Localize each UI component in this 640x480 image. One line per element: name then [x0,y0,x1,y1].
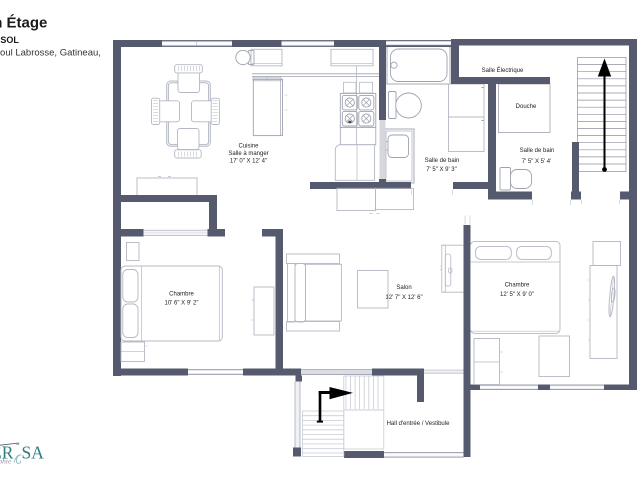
svg-text:n Étage: n Étage [0,15,47,32]
svg-text:SA: SA [22,443,45,463]
svg-text:Cuisine: Cuisine [238,144,259,150]
svg-text:10' 6" X 9' 2": 10' 6" X 9' 2" [165,300,199,306]
svg-text:17' 0" X 12' 4": 17' 0" X 12' 4" [230,159,267,165]
svg-text:Salle à manger: Salle à manger [228,151,268,157]
svg-text:Salle de bain: Salle de bain [520,148,555,154]
svg-text:Chambre: Chambre [169,291,194,297]
svg-text:12' 5" X 9' 0": 12' 5" X 9' 0" [500,292,534,298]
svg-text:Boul Labrosse, Gatineau,: Boul Labrosse, Gatineau, [0,48,101,59]
svg-text:12' 7" X 12' 6": 12' 7" X 12' 6" [385,295,422,301]
svg-text:Salle de bain: Salle de bain [425,158,460,164]
svg-text:7' 5" X 9' 3": 7' 5" X 9' 3" [426,167,457,173]
svg-text:Salle Électrique: Salle Électrique [482,67,524,74]
svg-text:Douche: Douche [516,104,537,110]
svg-text:SOUS-SOL: SOUS-SOL [0,35,19,45]
svg-text:Hall d'entrée / Vestibule: Hall d'entrée / Vestibule [387,421,451,427]
svg-text:7' 5" X 5' 4': 7' 5" X 5' 4' [522,159,552,165]
svg-text:Salon: Salon [396,285,411,291]
svg-text:Chambre: Chambre [505,283,530,289]
svg-text:graphie: graphie [0,457,12,466]
